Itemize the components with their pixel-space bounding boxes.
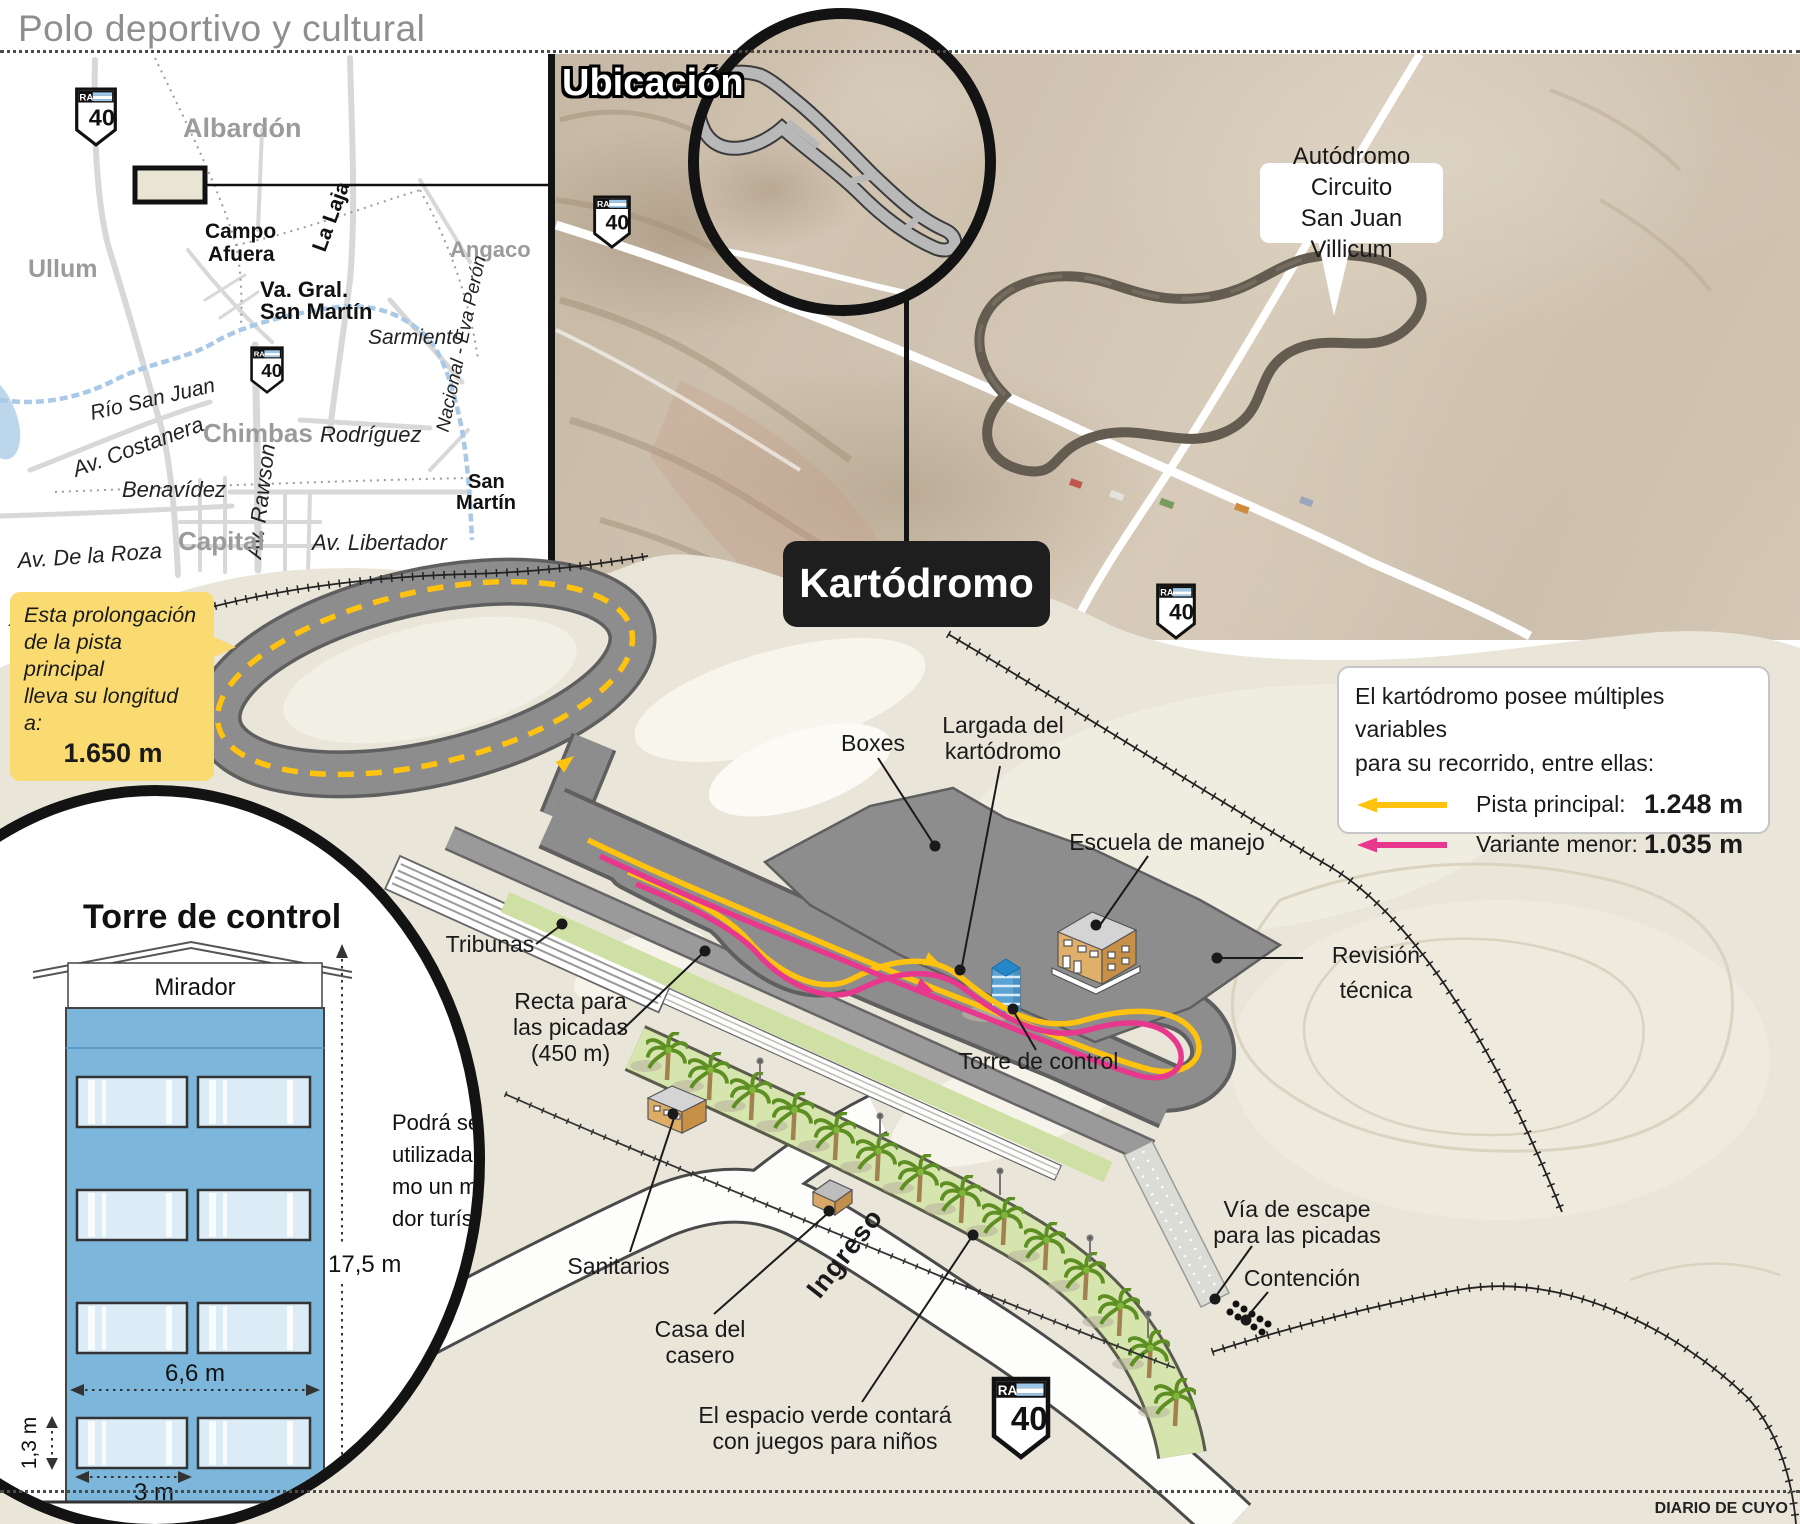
prolongacion-callout: Esta prolongación de la pista principal … xyxy=(10,592,214,781)
tower-detail-inset: Torre de control Mirador xyxy=(0,785,485,1524)
shield-ra40-map-south xyxy=(252,348,283,393)
shield-ra40-map-north xyxy=(77,89,116,145)
shield-ra40-satellite-2 xyxy=(1158,585,1195,638)
label-escuela: Escuela de manejo xyxy=(1047,829,1287,855)
prolongacion-value: 1.650 m xyxy=(24,738,202,769)
label-recta: Recta paralas picadas(450 m) xyxy=(488,988,653,1067)
page-title: Polo deportivo y cultural xyxy=(18,8,425,50)
label-casa-del-casero: Casa delcasero xyxy=(630,1316,770,1368)
label-contencion: Contención xyxy=(1222,1265,1382,1291)
bottom-divider xyxy=(0,1490,1800,1493)
label-torre-de-control: Torre de control xyxy=(946,1048,1131,1074)
top-divider xyxy=(0,50,1800,53)
mirador-label: Mirador xyxy=(154,974,235,1001)
infographic-kartodromo: RA 40 xyxy=(0,0,1800,1524)
kartodromo-connector-line xyxy=(904,300,909,545)
shield-ra40-satellite xyxy=(595,197,630,247)
svg-text:utilizada co-: utilizada co- xyxy=(392,1142,474,1167)
label-largada: Largada delkartódromo xyxy=(913,712,1093,764)
pista-principal-arrow-icon xyxy=(1355,796,1450,814)
svg-text:Podrá ser: Podrá ser xyxy=(392,1110,474,1135)
kart-track-zoom-inset xyxy=(688,8,996,316)
legend-row-pista: Pista principal: 1.248 m xyxy=(1355,789,1754,820)
track-legend: El kartódromo posee múltiples variables … xyxy=(1337,666,1770,834)
autodromo-callout: Autódromo Circuito San Juan Villicum xyxy=(1260,163,1443,243)
label-sanitarios: Sanitarios xyxy=(536,1253,701,1279)
tower-inset-title: Torre de control xyxy=(83,898,341,936)
dim-width: 6,6 m xyxy=(165,1360,225,1387)
dim-height: 17,5 m xyxy=(328,1251,401,1278)
label-revision: Revisióntécnica xyxy=(1306,938,1446,1007)
label-via-de-escape: Vía de escapepara las picadas xyxy=(1192,1196,1402,1248)
kartodromo-title-box: Kartódromo xyxy=(783,541,1050,627)
legend-row-variante: Variante menor: 1.035 m xyxy=(1355,829,1754,860)
section-title-ubicacion: Ubicación xyxy=(562,62,744,105)
credit: DIARIO DE CUYO xyxy=(1655,1500,1788,1518)
label-espacio-verde: El espacio verde contarácon juegos para … xyxy=(660,1402,990,1454)
svg-text:mo un mira-: mo un mira- xyxy=(392,1174,474,1199)
tower-note: Podrá ser utilizada co- mo un mira- dor … xyxy=(392,1110,474,1231)
variante-menor-arrow-icon xyxy=(1355,836,1450,854)
dim-window-height: 1,3 m xyxy=(18,1417,41,1470)
svg-text:dor turístico.: dor turístico. xyxy=(392,1206,474,1231)
